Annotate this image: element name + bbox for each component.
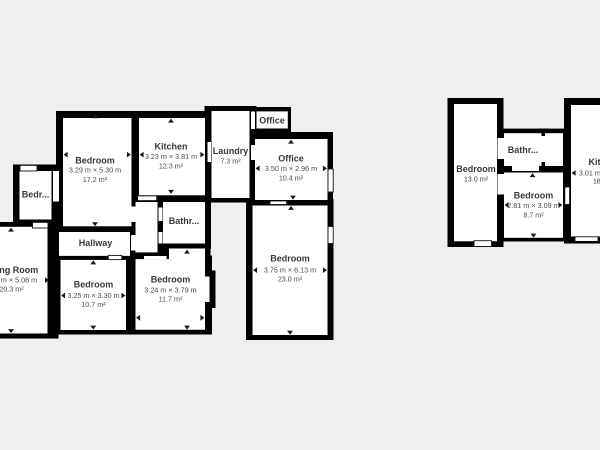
svg-text:12.3 m²: 12.3 m² — [159, 162, 184, 171]
svg-text:Hallway: Hallway — [79, 238, 113, 248]
svg-text:Office: Office — [259, 116, 285, 126]
svg-text:Bedroom: Bedroom — [270, 254, 310, 264]
svg-text:Bedroom: Bedroom — [456, 164, 496, 174]
svg-text:3.50 m × 2.96 m: 3.50 m × 2.96 m — [265, 164, 317, 173]
svg-text:13.0 m²: 13.0 m² — [464, 175, 489, 184]
svg-text:23.0 m²: 23.0 m² — [278, 274, 303, 283]
svg-text:Living Room: Living Room — [0, 265, 38, 275]
svg-text:Kitchen: Kitchen — [588, 157, 600, 167]
svg-text:8.7 m²: 8.7 m² — [523, 210, 544, 219]
svg-text:20.3 m²: 20.3 m² — [0, 284, 24, 293]
svg-text:Bedroom: Bedroom — [151, 274, 191, 284]
svg-text:10.7 m²: 10.7 m² — [81, 300, 106, 309]
svg-text:3.25 m × 3.30 m: 3.25 m × 3.30 m — [67, 291, 119, 300]
svg-text:18.4 m²: 18.4 m² — [593, 177, 600, 186]
svg-text:Bathr...: Bathr... — [508, 145, 539, 155]
svg-text:2.81 m × 3.09 m: 2.81 m × 3.09 m — [507, 201, 559, 210]
svg-text:Kitchen: Kitchen — [154, 142, 187, 152]
svg-text:Bedroom: Bedroom — [74, 279, 114, 289]
svg-text:Office: Office — [278, 154, 304, 164]
svg-text:11.7 m²: 11.7 m² — [159, 294, 183, 303]
svg-text:Laundry: Laundry — [213, 146, 249, 156]
svg-text:7.3 m²: 7.3 m² — [220, 157, 241, 166]
svg-text:3.23 m × 3.81 m: 3.23 m × 3.81 m — [145, 152, 197, 161]
svg-text:Bedroom: Bedroom — [514, 191, 554, 201]
svg-text:17.2 m²: 17.2 m² — [83, 175, 108, 184]
svg-text:Bedroom: Bedroom — [75, 156, 115, 166]
svg-text:Bedr...: Bedr... — [22, 190, 50, 200]
svg-text:10.4 m²: 10.4 m² — [279, 174, 304, 183]
svg-text:3.29 m × 5.30 m: 3.29 m × 5.30 m — [69, 166, 121, 175]
svg-text:Bathr...: Bathr... — [169, 216, 200, 226]
svg-text:3.24 m × 3.79 m: 3.24 m × 3.79 m — [144, 286, 196, 295]
